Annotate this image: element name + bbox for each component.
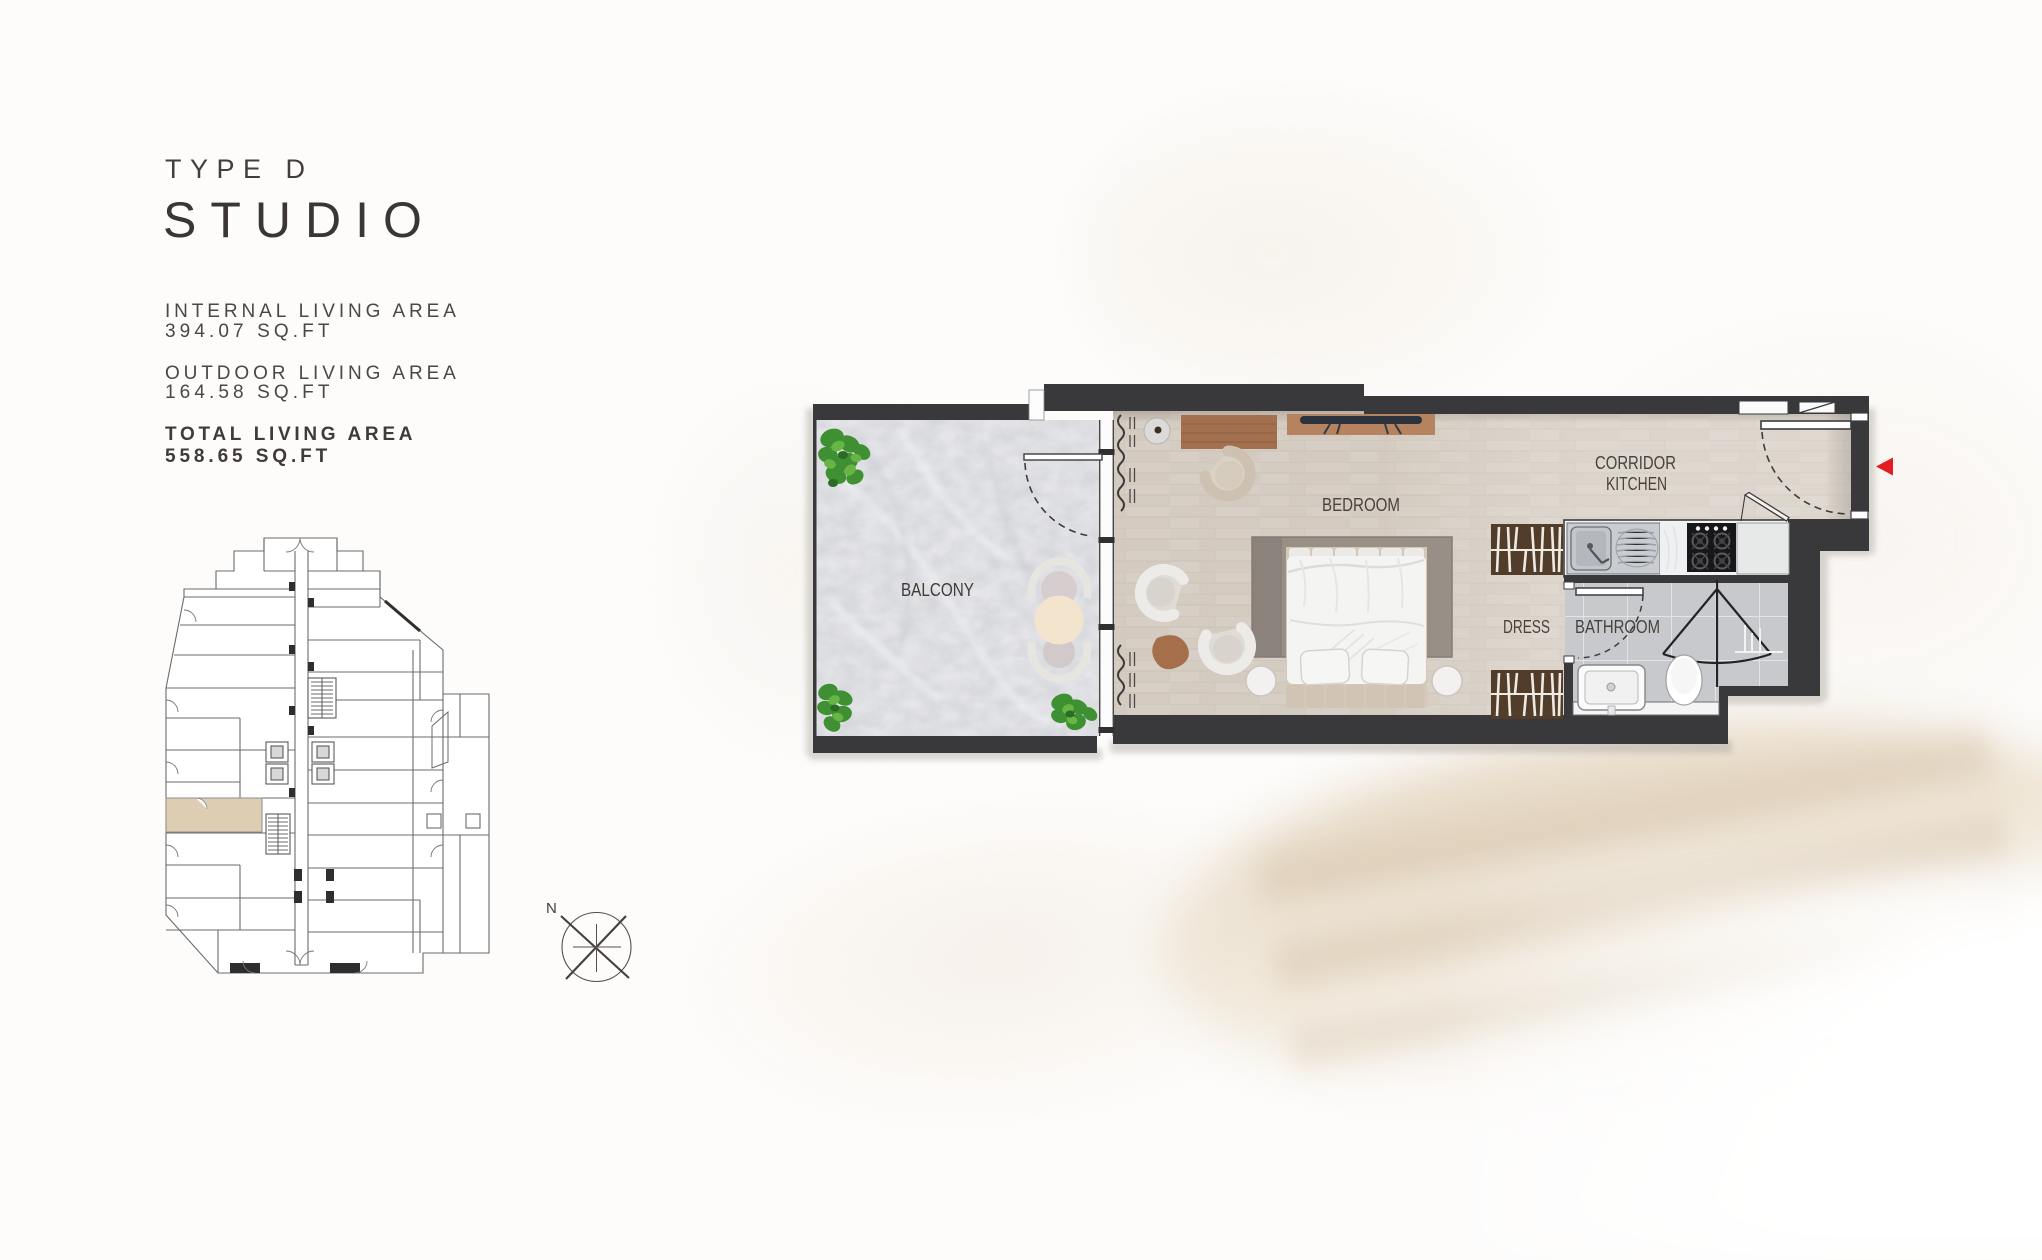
svg-text:BEDROOM: BEDROOM [1322, 494, 1400, 515]
svg-text:N: N [546, 900, 557, 917]
svg-text:KITCHEN: KITCHEN [1606, 473, 1667, 494]
svg-text:DRESS: DRESS [1503, 616, 1550, 637]
svg-text:BATHROOM: BATHROOM [1575, 616, 1660, 637]
svg-text:CORRIDOR: CORRIDOR [1595, 452, 1676, 473]
svg-text:BALCONY: BALCONY [901, 579, 974, 600]
